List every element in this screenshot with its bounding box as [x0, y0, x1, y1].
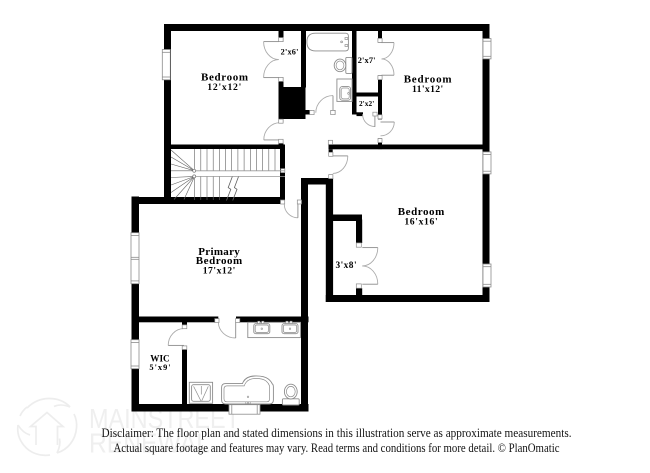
svg-text:2'x6': 2'x6' [281, 48, 299, 57]
svg-text:12'x12': 12'x12' [207, 82, 241, 93]
svg-text:11'x12': 11'x12' [412, 84, 443, 95]
svg-text:2'x7': 2'x7' [358, 56, 376, 65]
svg-text:3'x8': 3'x8' [335, 261, 356, 271]
svg-text:Disclaimer: The floor plan and: Disclaimer: The floor plan and stated di… [102, 426, 572, 440]
svg-text:Actual square footage and feat: Actual square footage and features may v… [114, 441, 561, 455]
svg-text:5'x9': 5'x9' [149, 363, 170, 372]
svg-text:17'x12': 17'x12' [203, 265, 236, 276]
svg-text:16'x16': 16'x16' [404, 216, 437, 227]
svg-text:2'x2': 2'x2' [359, 99, 374, 108]
